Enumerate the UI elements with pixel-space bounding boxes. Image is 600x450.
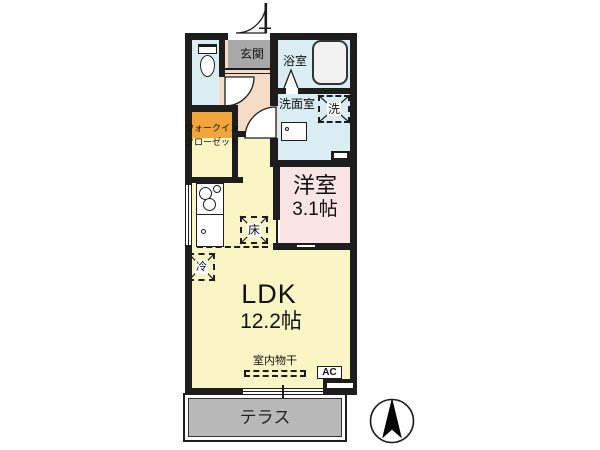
wall-top-right	[270, 33, 357, 40]
western-room-size: 3.1帖	[280, 198, 350, 220]
plan-symbols-layer	[0, 0, 600, 450]
kitchen-sink-faucet-dot	[201, 229, 206, 234]
kitchen-window-center-line	[188, 185, 189, 245]
ldk-name: LDK	[229, 280, 309, 308]
ac-unit-box: AC	[317, 366, 342, 379]
floor-plan: AC 玄関 浴室 洗面室 洗 ウォークイン クローゼット 洋室 3.1帖 LDK…	[0, 0, 600, 450]
bath-folding-door	[284, 70, 298, 88]
western-room-name: 洋室	[280, 174, 350, 198]
entrance-step-line-2	[225, 73, 270, 74]
western-sliding-door-line	[276, 220, 278, 243]
bathtub-icon	[312, 40, 348, 85]
washroom-sink-icon	[281, 122, 307, 141]
wall-hall-washroom-upper	[270, 33, 278, 106]
washroom-corner-inset	[334, 153, 347, 158]
wall-hall-washroom-lower	[270, 138, 278, 160]
stove-burner-large-2	[203, 198, 216, 211]
washroom-door-arc	[245, 107, 276, 138]
terrace-window-tick	[282, 385, 284, 398]
refrigerator-label: 冷	[195, 260, 208, 274]
north-compass-icon	[371, 400, 414, 443]
ldk-size: 12.2帖	[231, 310, 311, 333]
entrance-label: 玄関	[234, 47, 270, 61]
wall-western-left	[273, 167, 280, 220]
floor-storage-label: 床	[247, 223, 261, 237]
wall-toilet-right	[219, 33, 225, 77]
ac-label: AC	[322, 368, 336, 378]
toilet-tank-icon	[198, 44, 217, 54]
wall-bath-washroom	[298, 88, 357, 94]
wall-toilet-bottom	[185, 105, 238, 112]
washroom-label: 洗面室	[276, 97, 318, 110]
toilet-door-arc	[225, 77, 254, 106]
stove-burner-small	[213, 185, 221, 193]
wic-label-line1: ウォークイン	[192, 123, 232, 134]
wall-washroom-bottom	[270, 160, 357, 167]
indoor-drying-label: 室内物干	[249, 355, 301, 367]
wall-western-bottom	[273, 243, 357, 250]
kitchen-counter-divider	[196, 214, 224, 215]
entrance-door-arc	[236, 3, 271, 33]
terrace-label: テラス	[225, 408, 305, 427]
western-bottom-door-tick	[297, 245, 315, 247]
bathroom-label: 浴室	[280, 54, 310, 67]
ac-wall-window-inset	[326, 382, 354, 389]
entrance-step-line-1	[225, 68, 270, 70]
wall-bath-washroom-stub	[278, 88, 286, 94]
washroom-sink-faucet-dot	[285, 127, 289, 131]
washer-label: 洗	[327, 102, 341, 116]
indoor-drying-dashed-bar	[244, 370, 306, 377]
wic-label-line2: クローゼット	[192, 137, 232, 148]
kitchen-boundary-dashed-line	[197, 246, 268, 248]
